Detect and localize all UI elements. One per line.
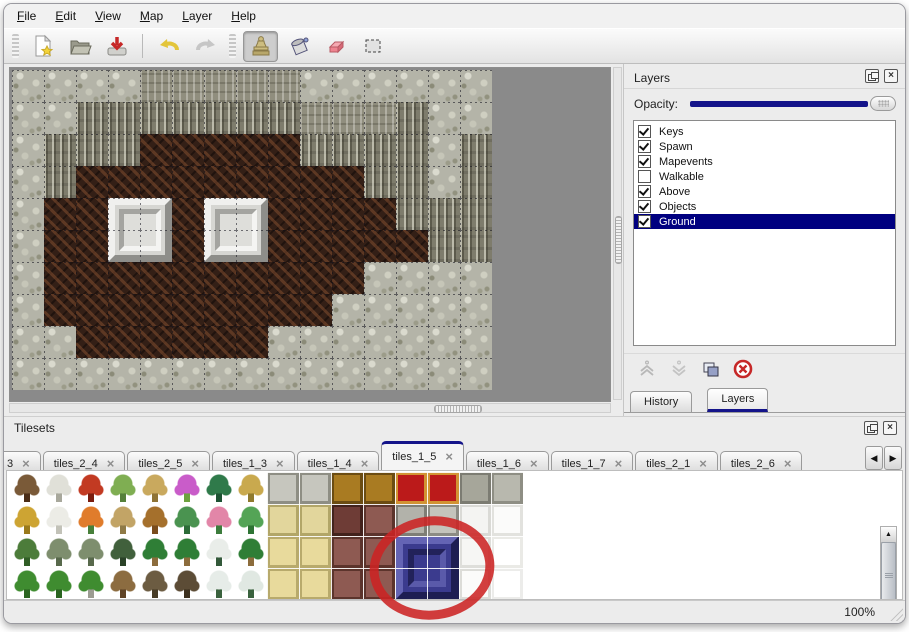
map-tile[interactable] <box>236 70 268 102</box>
map-tile[interactable] <box>12 198 44 230</box>
tileset-cell[interactable] <box>107 536 139 568</box>
layer-visibility-checkbox[interactable] <box>638 170 651 183</box>
tileset-cell[interactable] <box>235 504 267 536</box>
tileset-cell[interactable] <box>11 536 43 568</box>
float-tilesets-icon[interactable] <box>864 421 878 435</box>
stone-block-object[interactable] <box>204 198 268 262</box>
tab-label: tiles_2_5 <box>138 458 182 470</box>
redo-button[interactable] <box>189 32 222 61</box>
tileset-cell[interactable] <box>171 472 203 504</box>
map-tile[interactable] <box>428 198 460 230</box>
map-tile[interactable] <box>268 134 300 166</box>
tileset-cell[interactable] <box>491 504 523 536</box>
layer-row-walkable[interactable]: Walkable <box>634 169 895 184</box>
opacity-slider[interactable] <box>690 101 868 107</box>
tab-label: tiles_2_4 <box>54 458 98 470</box>
map-tile[interactable] <box>44 262 76 294</box>
tileset-cell[interactable] <box>171 504 203 536</box>
tab-close-icon[interactable]: × <box>107 459 115 469</box>
map-tile[interactable] <box>108 166 140 198</box>
map-tile[interactable] <box>332 326 364 358</box>
map-tile[interactable] <box>76 102 108 134</box>
map-tile[interactable] <box>236 358 268 390</box>
map-tile[interactable] <box>12 70 44 102</box>
tab-close-icon[interactable]: × <box>784 459 792 469</box>
map-tile[interactable] <box>460 262 492 294</box>
tileset-cell[interactable] <box>11 568 43 600</box>
layer-row-ground[interactable]: Ground <box>634 214 895 229</box>
map-tile[interactable] <box>236 294 268 326</box>
map-tile[interactable] <box>76 70 108 102</box>
tileset-cell[interactable] <box>491 472 523 504</box>
menu-layer[interactable]: Layer <box>182 9 212 23</box>
map-tile[interactable] <box>140 70 172 102</box>
menu-edit[interactable]: Edit <box>55 9 76 23</box>
tileset-cell[interactable] <box>203 504 235 536</box>
tileset-cell[interactable] <box>299 504 331 536</box>
map-tile[interactable] <box>172 358 204 390</box>
tileset-cell[interactable] <box>11 504 43 536</box>
map-tile[interactable] <box>428 326 460 358</box>
map-tile[interactable] <box>396 134 428 166</box>
map-tile[interactable] <box>140 166 172 198</box>
map-tile[interactable] <box>12 262 44 294</box>
eraser-tool-button[interactable] <box>319 32 352 61</box>
map-tile[interactable] <box>300 166 332 198</box>
stamp-tool-button[interactable] <box>243 31 278 62</box>
tileset-cell[interactable] <box>75 504 107 536</box>
tileset-cell[interactable] <box>363 568 395 600</box>
map-tiles[interactable] <box>12 70 492 390</box>
tileset-cell[interactable] <box>491 536 523 568</box>
tileset-tab-tiles_2_5[interactable]: tiles_2_5× <box>127 451 210 470</box>
map-tile[interactable] <box>332 134 364 166</box>
map-tile[interactable] <box>172 70 204 102</box>
tileset-cell[interactable] <box>459 536 491 568</box>
float-panel-icon[interactable] <box>865 69 879 83</box>
menu-file[interactable]: File <box>17 9 36 23</box>
tileset-cell[interactable] <box>363 504 395 536</box>
tileset-cell[interactable] <box>267 568 299 600</box>
duplicate-layer-button[interactable] <box>700 358 722 380</box>
map-tile[interactable] <box>428 230 460 262</box>
map-tile[interactable] <box>268 70 300 102</box>
map-tile[interactable] <box>300 326 332 358</box>
opacity-label: Opacity: <box>634 97 678 111</box>
tileset-cell[interactable] <box>171 536 203 568</box>
map-tile[interactable] <box>364 134 396 166</box>
map-tile[interactable] <box>364 230 396 262</box>
tileset-tab-tiles_1_7[interactable]: tiles_1_7× <box>551 451 634 470</box>
map-tile[interactable] <box>268 230 300 262</box>
tab-label: tiles_1_4 <box>308 458 352 470</box>
map-tile[interactable] <box>76 294 108 326</box>
map-tile[interactable] <box>172 294 204 326</box>
tileset-cell[interactable] <box>107 568 139 600</box>
stone-block-object[interactable] <box>108 198 172 262</box>
layer-row-above[interactable]: Above <box>634 184 895 199</box>
map-tile[interactable] <box>108 262 140 294</box>
map-tile[interactable] <box>364 326 396 358</box>
dock-tab-layers[interactable]: Layers <box>707 388 768 412</box>
map-tile[interactable] <box>12 166 44 198</box>
tileset-tab-tiles_2_6[interactable]: tiles_2_6× <box>720 451 803 470</box>
map-tile[interactable] <box>300 102 332 134</box>
map-viewport[interactable] <box>9 67 611 402</box>
tileset-cell[interactable] <box>331 504 363 536</box>
save-icon <box>105 34 129 58</box>
map-tile[interactable] <box>44 102 76 134</box>
map-tile[interactable] <box>460 102 492 134</box>
map-tile[interactable] <box>204 166 236 198</box>
tileset-tab-tiles_1_3[interactable]: tiles_1_3× <box>212 451 295 470</box>
opacity-slider-handle[interactable] <box>870 96 896 111</box>
tileset-cell[interactable] <box>203 536 235 568</box>
tileset-cell[interactable] <box>203 568 235 600</box>
lower-layer-button[interactable] <box>668 358 690 380</box>
tileset-tab-3[interactable]: 3× <box>4 451 41 470</box>
map-tile[interactable] <box>44 230 76 262</box>
close-panel-icon[interactable]: × <box>884 69 898 83</box>
tileset-cell[interactable] <box>43 472 75 504</box>
map-tile[interactable] <box>396 70 428 102</box>
map-tile[interactable] <box>460 198 492 230</box>
tab-close-icon[interactable]: × <box>276 459 284 469</box>
map-tile[interactable] <box>76 358 108 390</box>
menu-help[interactable]: Help <box>231 9 256 23</box>
map-tile[interactable] <box>12 358 44 390</box>
tileset-cell[interactable] <box>299 568 331 600</box>
layer-row-mapevents[interactable]: Mapevents <box>634 154 895 169</box>
map-tile[interactable] <box>172 166 204 198</box>
map-tile[interactable] <box>300 358 332 390</box>
map-tile[interactable] <box>204 294 236 326</box>
map-tile[interactable] <box>44 294 76 326</box>
tileset-cell[interactable] <box>75 472 107 504</box>
map-tile[interactable] <box>300 134 332 166</box>
divider <box>624 88 905 89</box>
map-tile[interactable] <box>108 358 140 390</box>
map-tile[interactable] <box>140 326 172 358</box>
select-tool-button[interactable] <box>356 32 389 61</box>
tileset-tab-tiles_1_6[interactable]: tiles_1_6× <box>466 451 549 470</box>
map-tile[interactable] <box>300 70 332 102</box>
tab-label: tiles_2_1 <box>646 458 690 470</box>
map-tile[interactable] <box>140 134 172 166</box>
tileset-cell[interactable] <box>427 472 459 504</box>
map-tile[interactable] <box>236 326 268 358</box>
tab-label: tiles_1_5 <box>392 451 436 463</box>
tabs-scroll-right-button[interactable]: ▶ <box>884 446 902 470</box>
map-tile[interactable] <box>332 262 364 294</box>
map-tile[interactable] <box>428 166 460 198</box>
map-tile[interactable] <box>140 294 172 326</box>
undo-button[interactable] <box>152 32 185 61</box>
map-tile[interactable] <box>172 102 204 134</box>
save-map-button[interactable] <box>100 32 133 61</box>
tab-label: tiles_2_6 <box>731 458 775 470</box>
tileset-cell[interactable] <box>203 472 235 504</box>
map-tile[interactable] <box>172 262 204 294</box>
layer-row-objects[interactable]: Objects <box>634 199 895 214</box>
opacity-row: Opacity: <box>634 95 896 113</box>
tileset-cell[interactable] <box>43 568 75 600</box>
map-tile[interactable] <box>460 70 492 102</box>
tab-close-icon[interactable]: × <box>530 459 538 469</box>
map-tile[interactable] <box>204 358 236 390</box>
map-tile[interactable] <box>428 262 460 294</box>
map-tile[interactable] <box>300 230 332 262</box>
tileset-cell[interactable] <box>235 536 267 568</box>
open-map-button[interactable] <box>63 32 96 61</box>
open-folder-icon <box>68 34 92 58</box>
tab-close-icon[interactable]: × <box>361 459 369 469</box>
tileset-cell[interactable] <box>107 504 139 536</box>
layer-visibility-checkbox[interactable] <box>638 125 651 138</box>
tileset-tab-tiles_1_4[interactable]: tiles_1_4× <box>297 451 380 470</box>
tileset-scroll-thumb[interactable] <box>881 542 896 600</box>
map-tile[interactable] <box>396 262 428 294</box>
map-tile[interactable] <box>460 326 492 358</box>
map-tile[interactable] <box>268 326 300 358</box>
map-tile[interactable] <box>108 326 140 358</box>
raise-layer-button[interactable] <box>636 358 658 380</box>
map-tile[interactable] <box>44 326 76 358</box>
map-tile[interactable] <box>396 358 428 390</box>
tileset-cell[interactable] <box>331 536 363 568</box>
map-tile[interactable] <box>428 358 460 390</box>
map-tile[interactable] <box>332 70 364 102</box>
map-tile[interactable] <box>268 198 300 230</box>
map-tile[interactable] <box>396 198 428 230</box>
tab-close-icon[interactable]: × <box>699 459 707 469</box>
layer-visibility-checkbox[interactable] <box>638 215 651 228</box>
map-tile[interactable] <box>460 358 492 390</box>
tab-close-icon[interactable]: × <box>22 459 30 469</box>
tileset-tabbar: 3×tiles_2_4×tiles_2_5×tiles_1_3×tiles_1_… <box>4 438 865 470</box>
layers-panel-title: Layers <box>634 71 670 85</box>
toolbar-drag-handle-2[interactable] <box>229 34 236 58</box>
tileset-tab-tiles_1_5[interactable]: tiles_1_5× <box>381 441 464 470</box>
map-tile[interactable] <box>268 102 300 134</box>
tileset-cell[interactable] <box>107 472 139 504</box>
map-tile[interactable] <box>12 102 44 134</box>
map-tile[interactable] <box>268 262 300 294</box>
paint-bucket-icon <box>287 34 311 58</box>
map-tile[interactable] <box>364 102 396 134</box>
map-tile[interactable] <box>364 70 396 102</box>
map-tile[interactable] <box>364 198 396 230</box>
map-tile[interactable] <box>108 134 140 166</box>
delete-layer-button[interactable] <box>732 358 754 380</box>
tabs-scroll-left-button[interactable]: ◀ <box>865 446 883 470</box>
tileset-cell[interactable] <box>139 472 171 504</box>
tileset-cell[interactable] <box>139 568 171 600</box>
map-tile[interactable] <box>300 294 332 326</box>
map-tile[interactable] <box>204 326 236 358</box>
resize-grip[interactable] <box>886 604 903 621</box>
tileset-cell[interactable] <box>363 536 395 568</box>
tileset-cell[interactable] <box>395 472 427 504</box>
map-tile[interactable] <box>76 262 108 294</box>
tileset-cell[interactable] <box>171 568 203 600</box>
map-tile[interactable] <box>172 230 204 262</box>
map-tile[interactable] <box>204 102 236 134</box>
tileset-cell[interactable] <box>459 504 491 536</box>
map-tile[interactable] <box>204 134 236 166</box>
tileset-cell[interactable] <box>267 504 299 536</box>
tileset-cell[interactable] <box>235 568 267 600</box>
tileset-cell[interactable] <box>331 568 363 600</box>
selected-blue-tile[interactable] <box>395 536 459 600</box>
map-tile[interactable] <box>76 326 108 358</box>
map-tile[interactable] <box>140 102 172 134</box>
map-tile[interactable] <box>300 198 332 230</box>
map-tile[interactable] <box>44 134 76 166</box>
map-tile[interactable] <box>44 198 76 230</box>
map-tile[interactable] <box>44 358 76 390</box>
map-tile[interactable] <box>12 326 44 358</box>
map-tile[interactable] <box>108 294 140 326</box>
tileset-content[interactable]: ▲ ▼ <box>6 470 903 600</box>
layer-visibility-checkbox[interactable] <box>638 185 651 198</box>
map-tile[interactable] <box>332 102 364 134</box>
tileset-cell[interactable] <box>267 536 299 568</box>
map-tile[interactable] <box>12 134 44 166</box>
canvas-hscrollbar[interactable] <box>9 403 611 413</box>
map-tile[interactable] <box>428 134 460 166</box>
scroll-up-button[interactable]: ▲ <box>881 527 896 543</box>
layer-name-label: Ground <box>659 216 696 228</box>
map-tile[interactable] <box>204 262 236 294</box>
tileset-cell[interactable] <box>299 536 331 568</box>
tileset-cell[interactable] <box>491 568 523 600</box>
layer-visibility-checkbox[interactable] <box>638 155 651 168</box>
map-tile[interactable] <box>332 358 364 390</box>
tileset-cell[interactable] <box>139 504 171 536</box>
map-tile[interactable] <box>332 198 364 230</box>
tileset-cell[interactable] <box>459 568 491 600</box>
toolbar-separator <box>142 34 143 58</box>
tileset-cell[interactable] <box>11 472 43 504</box>
tileset-cell[interactable] <box>299 472 331 504</box>
map-tile[interactable] <box>12 294 44 326</box>
tileset-cell[interactable] <box>139 536 171 568</box>
map-tile[interactable] <box>44 70 76 102</box>
tileset-tab-tiles_2_4[interactable]: tiles_2_4× <box>43 451 126 470</box>
map-tile[interactable] <box>172 326 204 358</box>
map-tile[interactable] <box>236 134 268 166</box>
tileset-cell[interactable] <box>75 568 107 600</box>
map-tile[interactable] <box>236 102 268 134</box>
map-tile[interactable] <box>44 166 76 198</box>
map-tile[interactable] <box>460 166 492 198</box>
dock-tab-history[interactable]: History <box>630 391 692 412</box>
tileset-cell[interactable] <box>43 536 75 568</box>
map-tile[interactable] <box>460 294 492 326</box>
tileset-tab-tiles_2_1[interactable]: tiles_2_1× <box>635 451 718 470</box>
map-tile[interactable] <box>332 294 364 326</box>
tileset-cell[interactable] <box>363 472 395 504</box>
map-tile[interactable] <box>108 102 140 134</box>
map-tile[interactable] <box>76 166 108 198</box>
layer-visibility-checkbox[interactable] <box>638 200 651 213</box>
tileset-cell[interactable] <box>75 536 107 568</box>
fill-tool-button[interactable] <box>282 32 315 61</box>
map-tile[interactable] <box>268 358 300 390</box>
map-tile[interactable] <box>172 198 204 230</box>
map-tile[interactable] <box>428 70 460 102</box>
map-tile[interactable] <box>364 262 396 294</box>
map-tile[interactable] <box>76 134 108 166</box>
toolbar-drag-handle[interactable] <box>12 34 19 58</box>
canvas-hscroll-thumb[interactable] <box>434 405 482 413</box>
map-tile[interactable] <box>396 166 428 198</box>
map-tile[interactable] <box>396 102 428 134</box>
map-tile[interactable] <box>428 294 460 326</box>
new-map-button[interactable] <box>26 32 59 61</box>
tileset-cell[interactable] <box>459 472 491 504</box>
tab-close-icon[interactable]: × <box>615 459 623 469</box>
close-tilesets-icon[interactable]: × <box>883 421 897 435</box>
map-tile[interactable] <box>108 70 140 102</box>
canvas-vscroll-thumb[interactable] <box>615 216 622 264</box>
map-tile[interactable] <box>76 198 108 230</box>
layer-buttons-row <box>624 353 905 383</box>
tab-label: 3 <box>7 458 13 470</box>
tileset-grid[interactable] <box>11 472 523 600</box>
map-tile[interactable] <box>268 294 300 326</box>
menu-view[interactable]: View <box>95 9 121 23</box>
map-tile[interactable] <box>332 230 364 262</box>
tileset-cell[interactable] <box>395 504 427 536</box>
map-tile[interactable] <box>172 134 204 166</box>
map-tile[interactable] <box>140 358 172 390</box>
layer-visibility-checkbox[interactable] <box>638 140 651 153</box>
map-tile[interactable] <box>460 134 492 166</box>
map-tile[interactable] <box>76 230 108 262</box>
layer-row-keys[interactable]: Keys <box>634 124 895 139</box>
map-tile[interactable] <box>236 166 268 198</box>
map-tile[interactable] <box>396 294 428 326</box>
map-tile[interactable] <box>300 262 332 294</box>
tileset-cell[interactable] <box>331 472 363 504</box>
tileset-cell[interactable] <box>427 504 459 536</box>
tileset-vscrollbar[interactable]: ▲ ▼ <box>880 526 897 600</box>
map-tile[interactable] <box>236 262 268 294</box>
tab-close-icon[interactable]: × <box>445 452 453 462</box>
map-tile[interactable] <box>364 358 396 390</box>
canvas-vscrollbar[interactable] <box>613 67 622 400</box>
tab-close-icon[interactable]: × <box>191 459 199 469</box>
map-tile[interactable] <box>364 166 396 198</box>
map-tile[interactable] <box>140 262 172 294</box>
tileset-cell[interactable] <box>43 504 75 536</box>
map-tile[interactable] <box>396 326 428 358</box>
tileset-cell[interactable] <box>267 472 299 504</box>
layer-row-spawn[interactable]: Spawn <box>634 139 895 154</box>
map-tile[interactable] <box>428 102 460 134</box>
map-tile[interactable] <box>460 230 492 262</box>
map-tile[interactable] <box>204 70 236 102</box>
map-tile[interactable] <box>364 294 396 326</box>
map-tile[interactable] <box>332 166 364 198</box>
menu-map[interactable]: Map <box>140 9 163 23</box>
tileset-cell[interactable] <box>235 472 267 504</box>
map-tile[interactable] <box>396 230 428 262</box>
map-tile[interactable] <box>268 166 300 198</box>
map-tile[interactable] <box>12 230 44 262</box>
